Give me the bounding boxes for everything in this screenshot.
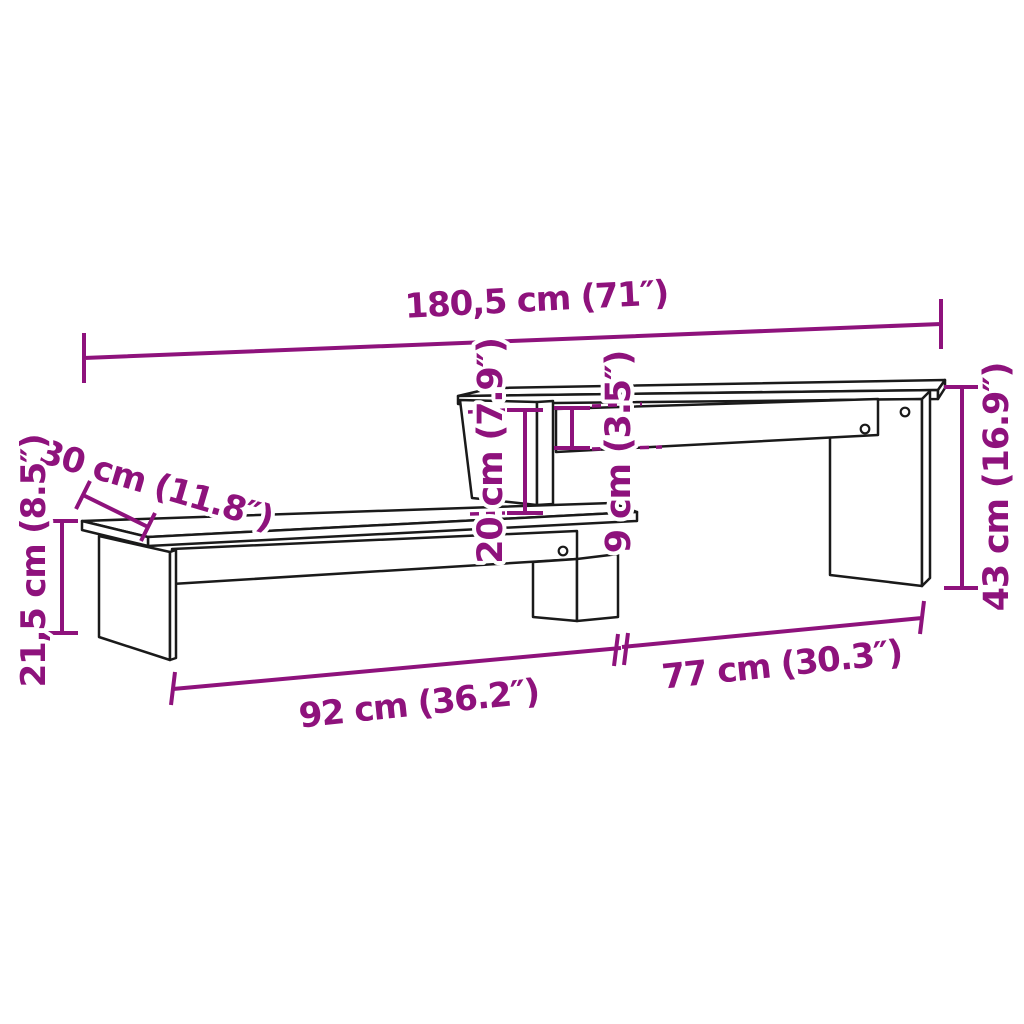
dimension-upper-length: 77 cm (30.3″)	[622, 601, 924, 698]
screw-hole-lower-rail	[559, 547, 568, 556]
screw-hole-upper-rail	[861, 425, 870, 434]
dimension-label-lower-length: 92 cm (36.2″)	[297, 672, 541, 737]
dimension-label-right-height: 43 cm (16.9″)	[977, 363, 1017, 612]
middle-divider-edge	[537, 401, 553, 505]
dimension-line	[944, 387, 978, 588]
dimension-total-width: 180,5 cm (71″)	[84, 273, 941, 383]
dimension-label-upper-length: 77 cm (30.3″)	[660, 633, 904, 698]
dimension-label-total-width: 180,5 cm (71″)	[404, 273, 669, 327]
left-side-panel	[99, 536, 170, 660]
left-side-panel-edge	[170, 550, 176, 660]
screw-hole-right-panel	[901, 408, 910, 417]
middle-leg-edge	[577, 554, 618, 621]
tv-stand-dimension-diagram: 180,5 cm (71″) 30 cm (11.8″) 21,5 cm (8.…	[0, 0, 1024, 1024]
dimension-label-shelf-gap: 20 cm (7.9″)	[471, 338, 511, 564]
dimension-right-height: 43 cm (16.9″)	[944, 363, 1017, 612]
middle-leg-face	[533, 559, 577, 621]
dimension-label-left-height: 21,5 cm (8.5″)	[14, 435, 54, 688]
dimension-diagram-page: 180,5 cm (71″) 30 cm (11.8″) 21,5 cm (8.…	[0, 0, 1024, 1024]
dimension-lower-length: 92 cm (36.2″)	[171, 633, 628, 737]
dimension-label-rail-height: 9 cm (3.5″)	[599, 351, 639, 553]
right-side-panel-edge	[922, 391, 930, 586]
